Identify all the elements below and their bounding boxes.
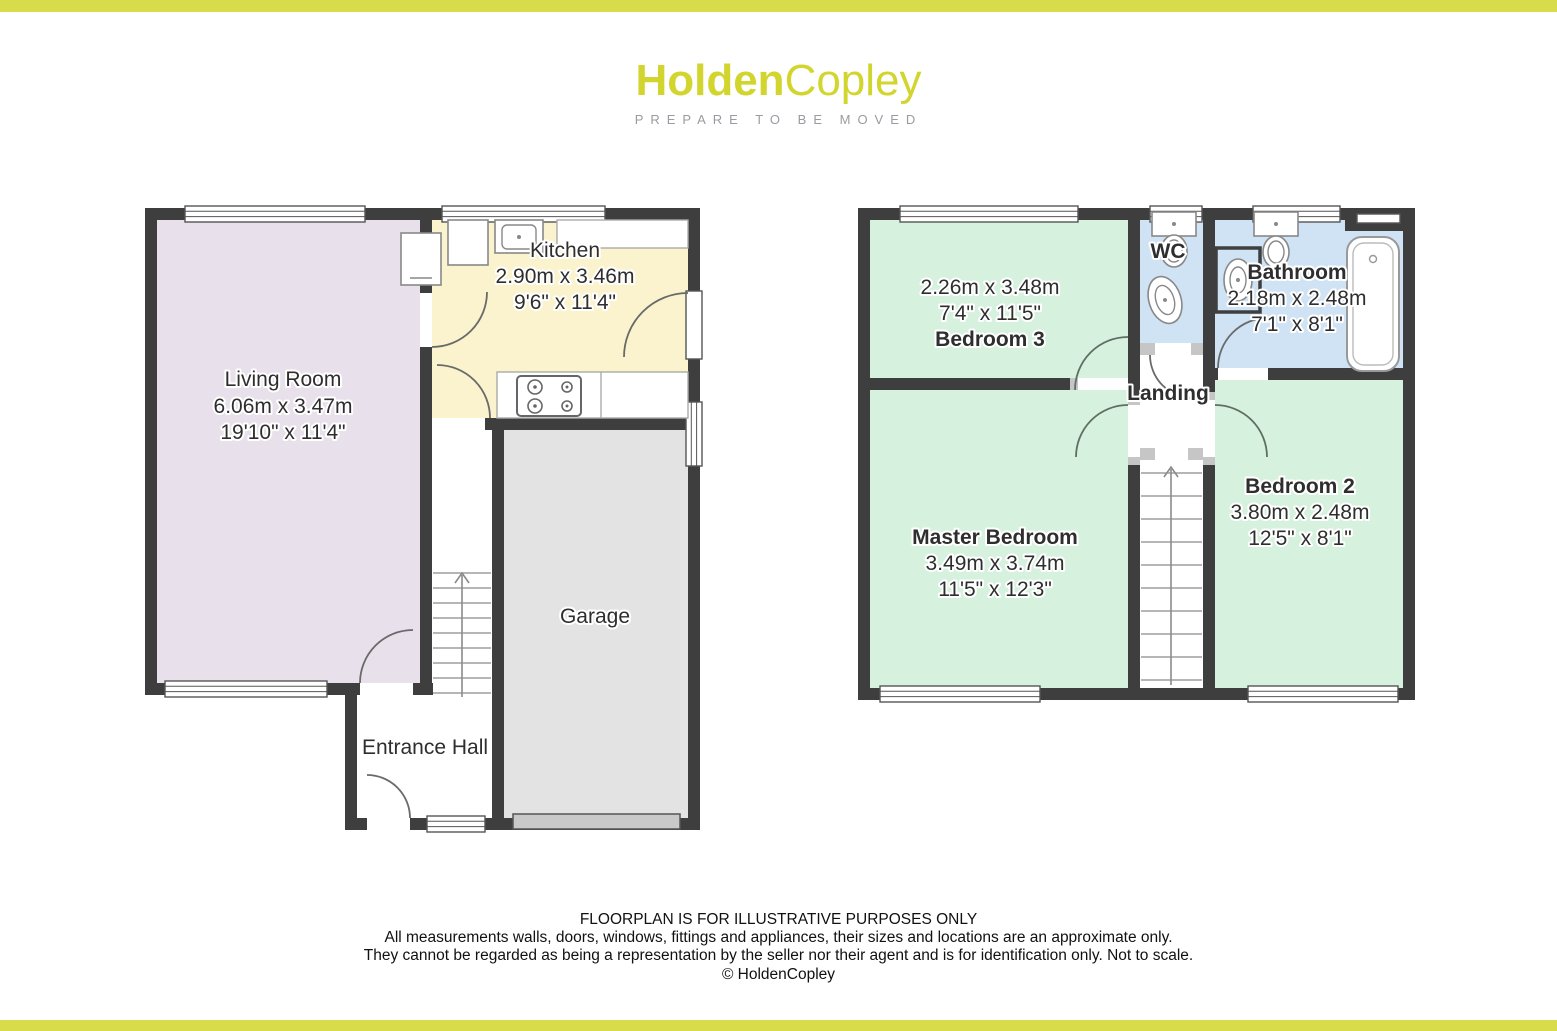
entrance-hall-label: Entrance Hall	[362, 736, 488, 759]
bedroom-3-dim-imperial: 7'4" x 11'5"	[939, 302, 1041, 325]
master-bedroom-dim-metric: 3.49m x 3.74m	[926, 552, 1065, 575]
bedroom-3-label: Bedroom 3	[935, 328, 1045, 351]
disclaimer: FLOORPLAN IS FOR ILLUSTRATIVE PURPOSES O…	[0, 911, 1557, 984]
master-bedroom-door-opening	[1128, 405, 1140, 457]
master-bedroom-label: Master Bedroom	[912, 526, 1078, 549]
brand-logo-text: HoldenCopley	[0, 56, 1557, 106]
bedroom-2-window	[1248, 686, 1398, 702]
bottom-accent-bar	[0, 1020, 1557, 1031]
bedroom-2-label: Bedroom 2	[1245, 475, 1355, 498]
floorplan-page: HoldenCopley PREPARE TO BE MOVED	[0, 0, 1557, 1031]
bedroom-3-window	[900, 206, 1078, 222]
bathroom-dim-imperial: 7'1" x 8'1"	[1251, 313, 1343, 336]
kitchen-door-opening-left	[420, 293, 432, 347]
bedroom-3-door-opening	[1078, 378, 1128, 390]
living-room-window-top	[185, 206, 365, 222]
kitchen-appliance-icon	[448, 220, 488, 265]
disclaimer-line-2: All measurements walls, doors, windows, …	[0, 929, 1557, 947]
first-floor-plan: 2.26m x 3.48m 7'4" x 11'5" Bedroom 3 WC …	[850, 195, 1425, 715]
landing-label: Landing	[1127, 382, 1209, 405]
bathroom-label: Bathroom	[1247, 261, 1346, 284]
kitchen-back-door-opening	[686, 291, 702, 359]
kitchen-dim-imperial: 9'6" x 11'4"	[514, 291, 616, 314]
kitchen-label: Kitchen	[530, 239, 600, 262]
top-accent-bar	[0, 0, 1557, 12]
living-room-dim-imperial: 19'10" x 11'4"	[220, 421, 345, 444]
first-floor-svg: 2.26m x 3.48m 7'4" x 11'5" Bedroom 3 WC …	[850, 195, 1425, 715]
bedroom-2-dim-imperial: 12'5" x 8'1"	[1248, 527, 1352, 550]
bathroom-dim-metric: 2.18m x 2.48m	[1228, 287, 1367, 310]
wc-door-opening	[1155, 343, 1191, 355]
corner-window-slot	[1357, 214, 1400, 223]
brand-logo: HoldenCopley PREPARE TO BE MOVED	[0, 56, 1557, 127]
living-room-door-opening	[360, 683, 413, 695]
kitchen-door-opening-bottom	[432, 418, 485, 430]
living-room-label: Living Room	[225, 368, 342, 391]
bedroom-2-door-opening	[1203, 400, 1215, 457]
ground-floor-svg: Kitchen 2.90m x 3.46m 9'6" x 11'4" Livin…	[140, 195, 715, 845]
ground-floor-plan: Kitchen 2.90m x 3.46m 9'6" x 11'4" Livin…	[140, 195, 715, 845]
bathroom-door-opening	[1218, 368, 1268, 380]
entrance-hall-window	[427, 816, 485, 832]
disclaimer-line-1: FLOORPLAN IS FOR ILLUSTRATIVE PURPOSES O…	[0, 911, 1557, 929]
entrance-door-opening	[367, 818, 410, 830]
brand-logo-bold: Holden	[635, 56, 784, 105]
brand-logo-light: Copley	[785, 56, 922, 105]
disclaimer-copyright: © HoldenCopley	[0, 966, 1557, 984]
living-room	[157, 220, 420, 683]
living-room-dim-metric: 6.06m x 3.47m	[214, 395, 353, 418]
bedroom-2-dim-metric: 3.80m x 2.48m	[1231, 501, 1370, 524]
wc-label: WC	[1151, 240, 1186, 263]
master-bedroom-window	[880, 686, 1040, 702]
disclaimer-line-3: They cannot be regarded as being a repre…	[0, 947, 1557, 965]
living-room-window-bottom	[165, 681, 327, 697]
bedroom-3-dim-metric: 2.26m x 3.48m	[921, 276, 1060, 299]
hob-icon	[517, 376, 581, 416]
master-bedroom-dim-imperial: 11'5" x 12'3"	[938, 578, 1052, 601]
kitchen-dim-metric: 2.90m x 3.46m	[496, 265, 635, 288]
brand-tagline: PREPARE TO BE MOVED	[0, 112, 1557, 127]
garage-door	[513, 814, 680, 829]
kitchen-cupboard-icon	[401, 233, 441, 285]
garage-label: Garage	[560, 605, 630, 628]
